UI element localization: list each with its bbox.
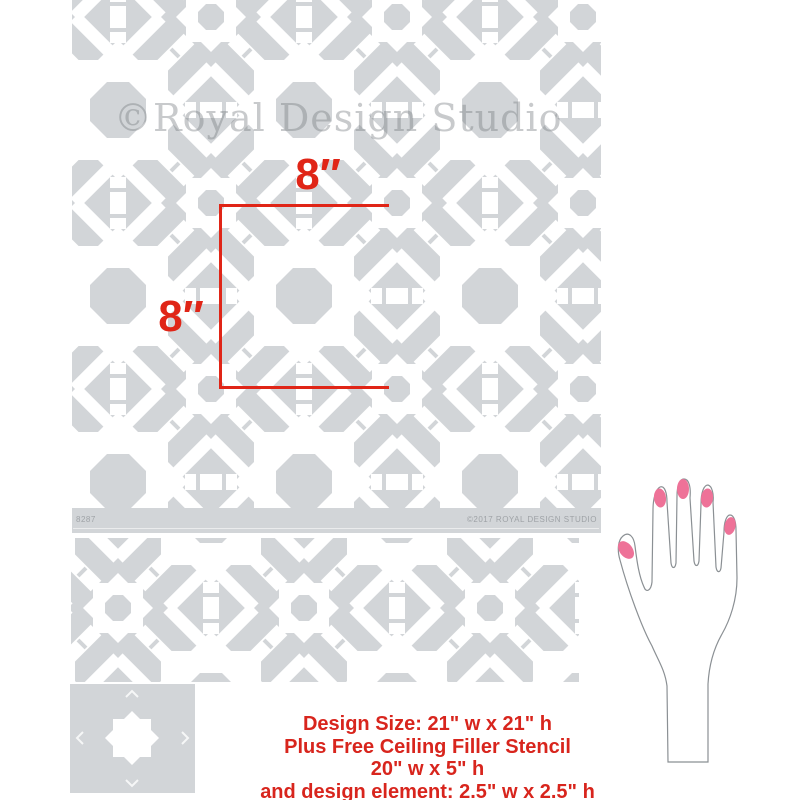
dimension-label-height: 8″ [146,295,216,339]
product-image: ©Royal Design Studio 8287 ©2017 ROYAL DE… [0,0,800,800]
dimension-label-width: 8″ [283,153,353,197]
border-stencil-sheet [71,538,579,682]
stencil-copyright: ©2017 ROYAL DESIGN STUDIO [440,515,597,524]
dimension-line-left [219,204,222,389]
dimension-line-top [219,204,389,207]
sheet-margin-line [73,528,599,529]
caption-line-element-size: and design element: 2.5" w x 2.5" h [195,781,660,800]
star-icon [105,711,159,765]
size-caption: Design Size: 21" w x 21" h Plus Free Cei… [195,713,660,800]
caption-line-filler-size: 20" w x 5" h [195,758,660,781]
moroccan-weave-pattern [72,0,601,508]
stencil-sku-code: 8287 [76,515,96,524]
main-stencil-sheet [72,0,601,533]
element-stencil-sheet [70,684,195,793]
caption-line-free-stencil: Plus Free Ceiling Filler Stencil [195,736,660,759]
dimension-line-bottom [219,386,389,389]
border-weave-pattern [71,538,579,682]
caption-line-design-size: Design Size: 21" w x 21" h [195,713,660,736]
watermark-text: ©Royal Design Studio [114,96,526,140]
middle-nail [677,479,689,499]
